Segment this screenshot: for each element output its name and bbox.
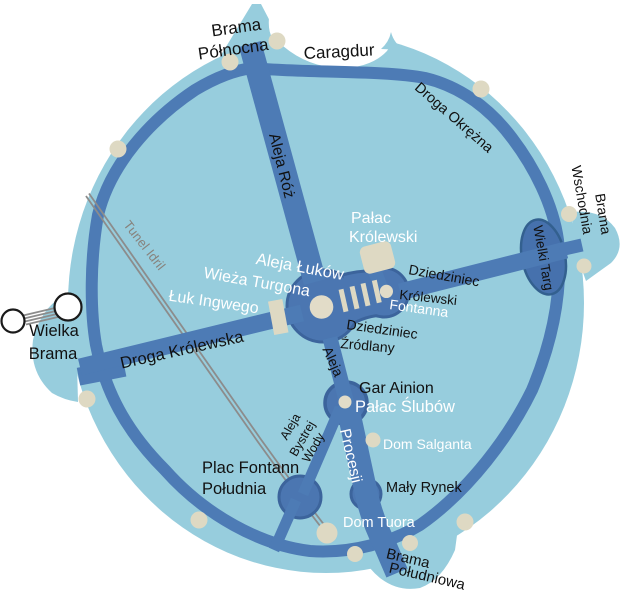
svg-text:Caragdur: Caragdur xyxy=(303,40,375,63)
svg-text:Dom Salganta: Dom Salganta xyxy=(383,436,472,452)
svg-text:Południa: Południa xyxy=(202,480,267,498)
svg-text:Pałac Ślubów: Pałac Ślubów xyxy=(355,397,455,416)
svg-text:Królewski: Królewski xyxy=(349,229,417,246)
svg-text:Gar Ainion: Gar Ainion xyxy=(359,380,434,397)
svg-text:Plac Fontann: Plac Fontann xyxy=(202,459,299,477)
svg-text:Mały Rynek: Mały Rynek xyxy=(386,480,462,496)
svg-text:Dom Tuora: Dom Tuora xyxy=(343,515,416,531)
svg-text:Pałac: Pałac xyxy=(351,210,391,227)
svg-text:Wielka: Wielka xyxy=(29,322,79,340)
svg-text:Brama: Brama xyxy=(29,345,78,363)
